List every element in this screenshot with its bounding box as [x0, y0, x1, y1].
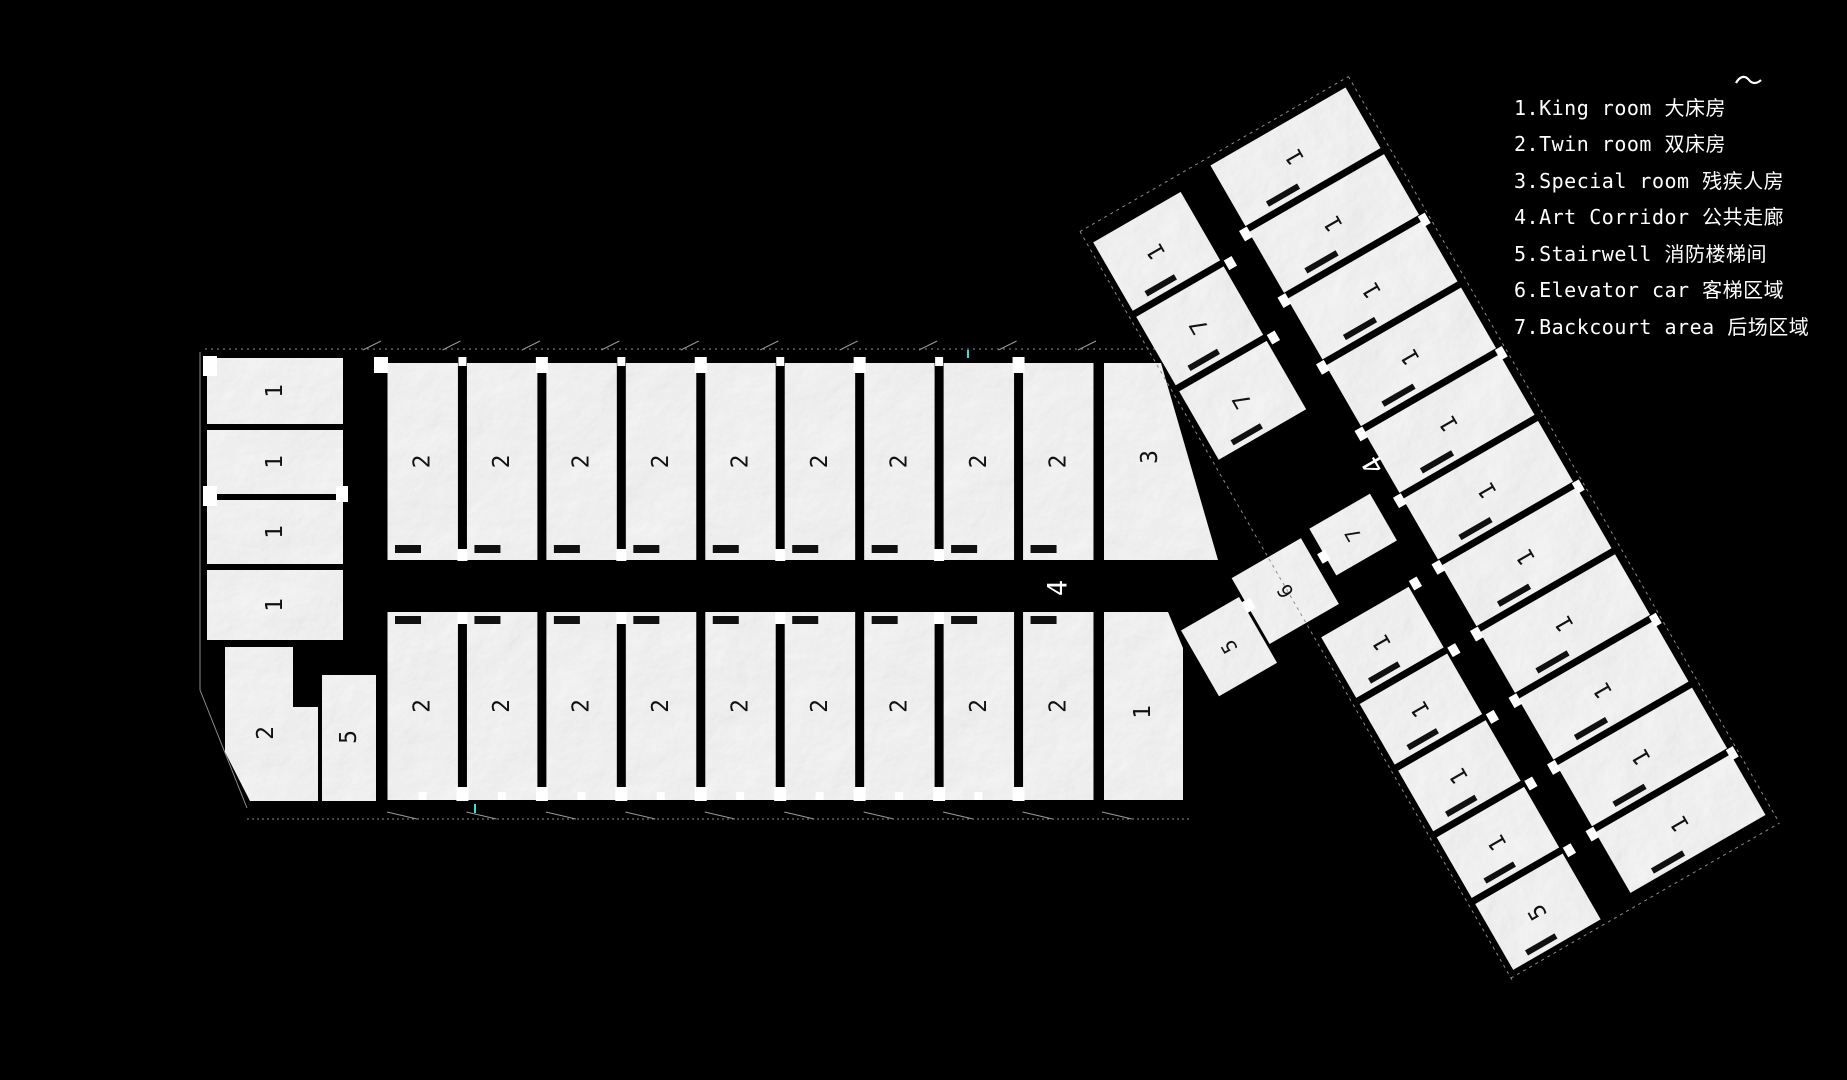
- room-number-label: 2: [410, 699, 436, 713]
- room-number-label: 2: [886, 455, 912, 469]
- room-number-label: 2: [569, 699, 595, 713]
- door-gap: [854, 357, 866, 373]
- room-number-label: 2: [886, 699, 912, 713]
- furniture-mark: [633, 545, 659, 553]
- door-gap: [975, 792, 983, 800]
- legend-item-backcourt-area: 7.Backcourt area 后场区域: [1514, 307, 1809, 344]
- room-number-label: 2: [966, 455, 992, 469]
- legend-item-elevator-car: 6.Elevator car 客梯区域: [1514, 271, 1809, 308]
- door-gap: [203, 356, 217, 376]
- door-gap: [934, 612, 944, 624]
- door-gap: [854, 787, 866, 801]
- furniture-mark: [792, 616, 818, 624]
- furniture-mark: [872, 545, 898, 553]
- room-number-label: 2: [728, 455, 754, 469]
- room-number-label: 1: [262, 455, 288, 469]
- door-gap: [456, 787, 468, 801]
- legend-item-twin-room: 2.Twin room 双床房: [1514, 125, 1809, 162]
- door-gap: [418, 792, 426, 800]
- room-number-label: 3: [1137, 450, 1163, 464]
- room-number-label: 2: [253, 726, 279, 740]
- furniture-mark: [713, 545, 739, 553]
- legend-item-stairwell: 5.Stairwell 消防楼梯间: [1514, 234, 1809, 271]
- door-gap: [457, 549, 467, 561]
- door-gap: [458, 357, 466, 366]
- room-number-label: 2: [1045, 699, 1071, 713]
- legend-item-art-corridor: 4.Art Corridor 公共走廊: [1514, 198, 1809, 235]
- furniture-mark: [872, 616, 898, 624]
- room-number-label: 2: [728, 699, 754, 713]
- room-number-label: 2: [648, 455, 674, 469]
- furniture-mark: [474, 616, 500, 624]
- door-gap: [774, 787, 786, 801]
- door-gap: [617, 357, 625, 366]
- legend-item-special-room: 3.Special room 残疾人房: [1514, 161, 1809, 198]
- furniture-mark: [474, 545, 500, 553]
- furniture-mark: [951, 616, 977, 624]
- door-gap: [775, 612, 785, 624]
- door-gap: [736, 792, 744, 800]
- room-number-label: 4: [1043, 580, 1074, 596]
- door-gap: [536, 357, 548, 373]
- door-gap: [616, 549, 626, 561]
- room-number-label: 2: [648, 699, 674, 713]
- door-gap: [616, 612, 626, 624]
- door-gap: [203, 486, 217, 506]
- door-gap: [776, 357, 784, 366]
- cyan-tick: [474, 804, 476, 813]
- door-gap: [657, 792, 665, 800]
- door-gap: [336, 486, 348, 502]
- door-gap: [895, 792, 903, 800]
- room-number-label: 2: [569, 455, 595, 469]
- door-gap: [536, 787, 548, 801]
- door-gap: [615, 787, 627, 801]
- furniture-mark: [554, 616, 580, 624]
- door-gap: [695, 787, 707, 801]
- door-gap: [935, 357, 943, 366]
- room-number-label: 2: [807, 699, 833, 713]
- room-number-label: 1: [262, 598, 288, 612]
- furniture-mark: [1031, 545, 1057, 553]
- room-number-label: 1: [1130, 705, 1156, 719]
- furniture-mark: [395, 545, 421, 553]
- floor-plan-page: 1111222222222222222222312541111111111117…: [0, 0, 1847, 1080]
- room-number-label: 1: [262, 525, 288, 539]
- door-gap: [374, 357, 388, 373]
- door-gap: [775, 549, 785, 561]
- room-number-label: 2: [410, 455, 436, 469]
- furniture-mark: [792, 545, 818, 553]
- door-gap: [577, 792, 585, 800]
- door-gap: [1013, 357, 1025, 373]
- room-number-label: 2: [489, 699, 515, 713]
- door-gap: [695, 357, 707, 373]
- door-gap: [933, 787, 945, 801]
- room-number-label: 5: [336, 730, 362, 744]
- door-gap: [934, 549, 944, 561]
- furniture-mark: [713, 616, 739, 624]
- furniture-mark: [633, 616, 659, 624]
- door-gap: [457, 612, 467, 624]
- door-gap: [816, 792, 824, 800]
- room-number-label: 2: [966, 699, 992, 713]
- furniture-mark: [1031, 616, 1057, 624]
- furniture-mark: [554, 545, 580, 553]
- room-number-label: 1: [262, 384, 288, 398]
- door-gap: [498, 792, 506, 800]
- room-number-label: 2: [1045, 455, 1071, 469]
- furniture-mark: [395, 616, 421, 624]
- room-number-label: 2: [489, 455, 515, 469]
- furniture-mark: [951, 545, 977, 553]
- legend: 1.King room 大床房 2.Twin room 双床房 3.Specia…: [1514, 88, 1809, 344]
- room-number-label: 2: [807, 455, 833, 469]
- cyan-tick: [967, 350, 969, 358]
- door-gap: [1013, 787, 1025, 801]
- legend-item-king-room: 1.King room 大床房: [1514, 88, 1809, 125]
